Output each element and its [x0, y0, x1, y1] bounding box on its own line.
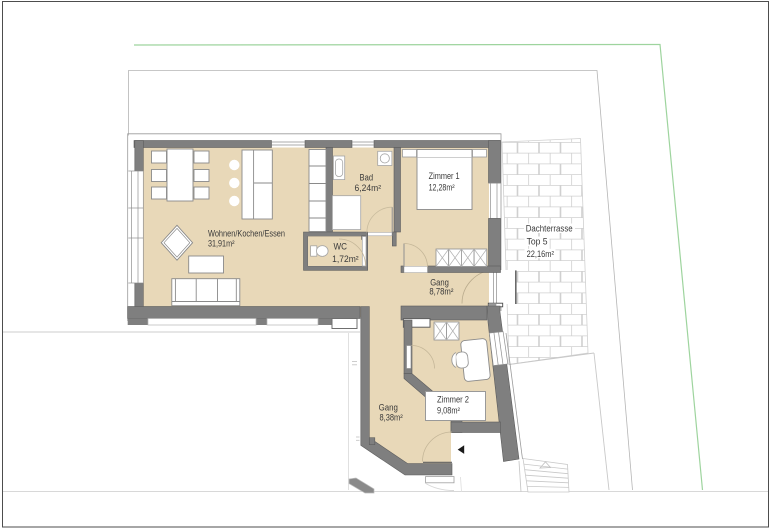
svg-text:12,28m²: 12,28m²: [429, 182, 455, 192]
svg-text:31,91m²: 31,91m²: [208, 238, 235, 248]
svg-text:WC: WC: [333, 242, 347, 252]
svg-text:8,78m²: 8,78m²: [429, 287, 453, 297]
svg-text:Dachterrasse: Dachterrasse: [526, 223, 573, 233]
svg-text:9,08m²: 9,08m²: [437, 406, 460, 416]
svg-text:Wohnen/Kochen/Essen: Wohnen/Kochen/Essen: [208, 228, 285, 238]
svg-text:Zimmer 1: Zimmer 1: [429, 171, 460, 181]
svg-text:Bad: Bad: [360, 173, 374, 183]
svg-text:6,24m²: 6,24m²: [355, 183, 382, 193]
svg-text:Top 5: Top 5: [527, 237, 548, 247]
svg-text:8,38m²: 8,38m²: [380, 413, 403, 423]
svg-text:Zimmer 2: Zimmer 2: [437, 395, 469, 405]
svg-text:22,16m²: 22,16m²: [527, 249, 554, 259]
svg-text:Gang: Gang: [379, 402, 398, 412]
svg-text:1,72m²: 1,72m²: [332, 254, 359, 264]
